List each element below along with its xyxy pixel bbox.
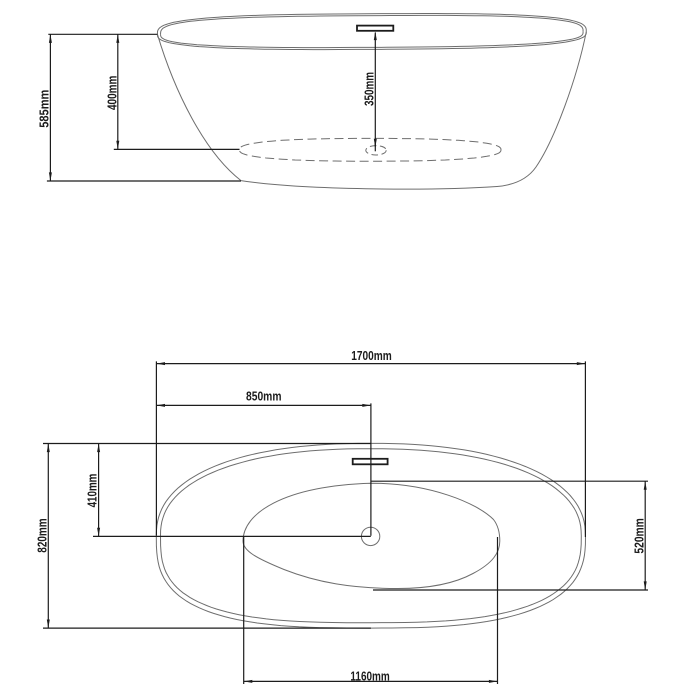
svg-text:410mm: 410mm [84, 474, 99, 508]
svg-text:520mm: 520mm [632, 518, 647, 553]
svg-text:585mm: 585mm [37, 90, 52, 128]
svg-text:850mm: 850mm [246, 389, 282, 404]
svg-text:400mm: 400mm [104, 76, 119, 110]
svg-text:1700mm: 1700mm [351, 348, 392, 363]
svg-text:820mm: 820mm [35, 518, 50, 552]
svg-text:1160mm: 1160mm [350, 668, 389, 683]
svg-text:350mm: 350mm [362, 72, 377, 106]
